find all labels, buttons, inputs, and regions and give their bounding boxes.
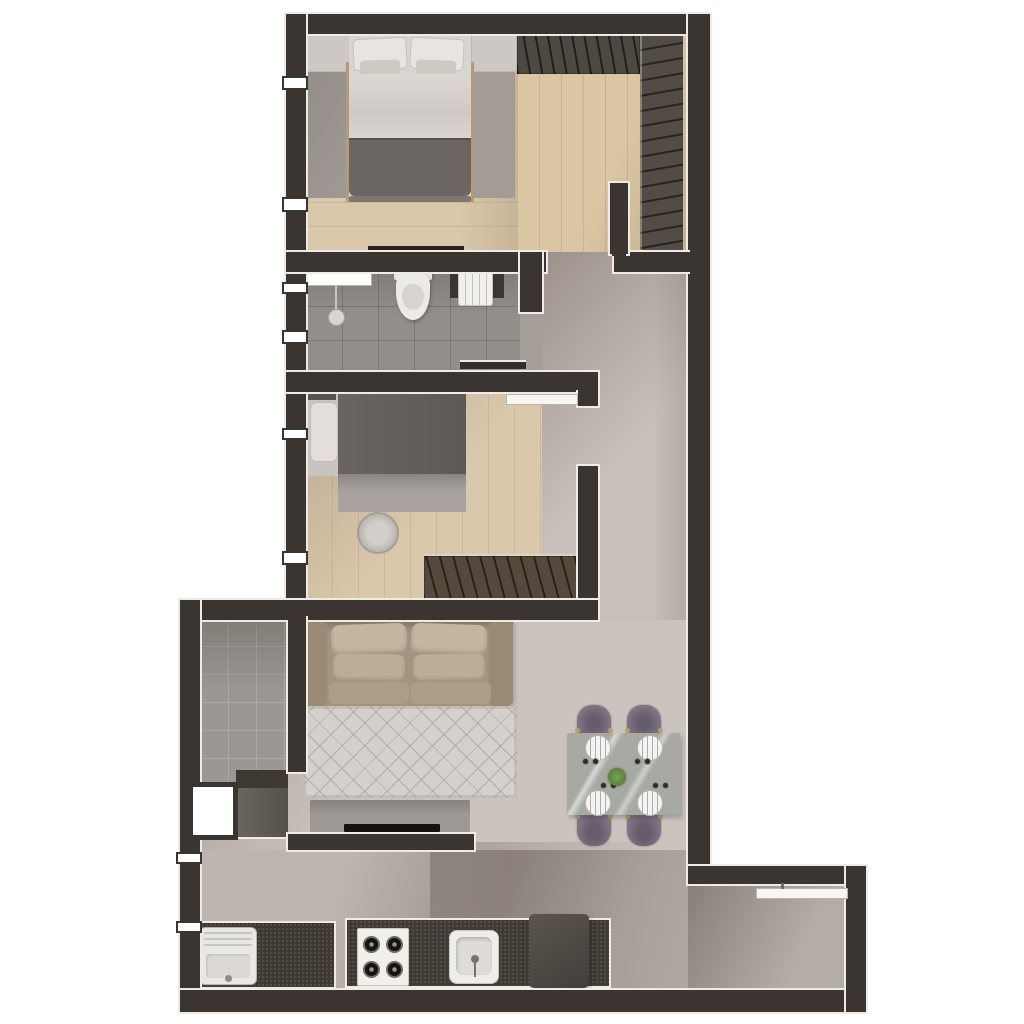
dining-chair-top-left — [577, 705, 611, 735]
sofa-seat-left — [329, 682, 409, 704]
sofa-arm-left — [303, 620, 327, 706]
vanity-basin — [458, 270, 493, 306]
wall-balcony-top — [688, 866, 866, 884]
toilet — [394, 266, 432, 322]
wall-bedroom2-right-top — [578, 392, 598, 406]
desk-stool — [357, 512, 399, 554]
sofa-seat-cushion-left — [333, 653, 405, 682]
sofa-seat-cushion-right — [413, 653, 485, 682]
window-kitchen-left — [176, 921, 202, 933]
window-bedroom1-a — [282, 76, 308, 90]
wall-bedroom1-bottom — [286, 252, 546, 272]
wall-tv-half — [288, 834, 474, 850]
kitchen-sink — [449, 930, 499, 984]
balcony-sliding-door — [756, 888, 848, 899]
wall-joint — [286, 600, 306, 620]
sofa-arm-right — [489, 620, 513, 706]
wall-bathroom-right — [520, 252, 542, 312]
wall-joint — [612, 248, 626, 256]
bath-mat — [460, 362, 526, 369]
bed2-pillow — [310, 402, 338, 462]
wardrobe-right — [640, 34, 683, 250]
bed2-blanket — [338, 392, 466, 476]
floor-plan — [0, 0, 1024, 1024]
wall-joint — [286, 14, 306, 34]
bed-blanket — [349, 138, 471, 196]
single-bed — [306, 390, 466, 476]
window-bedroom1-b — [282, 197, 308, 212]
sink-faucet-stem — [474, 963, 476, 977]
cup — [582, 758, 589, 765]
sink-faucet — [471, 955, 479, 963]
window-bathroom-a — [282, 282, 308, 294]
service-room-floor — [200, 618, 288, 782]
cup — [592, 758, 599, 765]
wall-joint — [688, 866, 710, 884]
stove — [357, 928, 409, 986]
bed-duvet — [349, 74, 471, 140]
wall-left-upper — [286, 14, 306, 620]
wardrobe-top — [517, 34, 640, 74]
plate-top-right — [637, 735, 663, 761]
table-plant — [608, 768, 626, 786]
wall-shelf — [368, 246, 464, 251]
tv — [344, 824, 440, 832]
stove-burner — [386, 936, 403, 953]
cup — [662, 782, 669, 789]
window-service — [176, 852, 202, 864]
cup — [652, 782, 659, 789]
living-rug — [303, 706, 517, 798]
sofa-seat-right — [411, 682, 491, 704]
wall-bedroom2-right-bottom — [578, 466, 598, 620]
dining-chair-bottom-left — [577, 812, 611, 846]
stove-burner — [363, 936, 380, 953]
double-bed — [346, 34, 474, 206]
cup — [600, 782, 607, 789]
door-leaf-bedroom2 — [506, 394, 578, 405]
plate-bottom-left — [585, 790, 611, 816]
shower-head — [328, 309, 345, 326]
stove-burner — [363, 961, 380, 978]
desk — [338, 474, 466, 512]
plate-bottom-right — [637, 790, 663, 816]
wardrobe-bedroom-2 — [424, 556, 578, 602]
dining-chair-top-right — [627, 705, 661, 735]
wall-joint — [688, 252, 710, 272]
wall-bottom — [180, 990, 866, 1012]
shower-hose — [335, 286, 337, 310]
tank-washboard — [204, 932, 252, 950]
laundry-tank — [199, 927, 257, 985]
wall-joint — [180, 990, 200, 1012]
sofa — [303, 616, 513, 706]
wall-joint — [846, 866, 866, 884]
wall-right — [688, 14, 710, 884]
plate-top-left — [585, 735, 611, 761]
window-bathroom-b — [282, 330, 308, 344]
wall-joint — [180, 600, 200, 620]
wall-bathroom-bedroom2 — [286, 372, 598, 392]
wall-joint — [846, 990, 866, 1012]
refrigerator — [529, 914, 589, 988]
wall-joint — [578, 386, 598, 394]
stove-burner — [386, 961, 403, 978]
sofa-back-cushion-right — [410, 623, 487, 658]
sliding-door-handle — [781, 883, 784, 889]
cup — [644, 758, 651, 765]
tank-faucet — [225, 975, 232, 982]
wall-top — [286, 14, 710, 34]
wall-living-top — [180, 600, 598, 620]
service-counter-top — [236, 770, 288, 788]
nightstand-right — [471, 34, 517, 72]
cup — [634, 758, 641, 765]
window-bedroom2-a — [282, 428, 308, 440]
wall-closet-stub — [610, 183, 628, 254]
bed-foot-bench — [349, 196, 471, 202]
wall-joint — [520, 268, 542, 274]
nightstand-left — [306, 34, 350, 72]
sofa-back-cushion-left — [330, 623, 407, 658]
wall-joint — [286, 252, 306, 272]
service-cabinet — [238, 788, 288, 837]
wall-joint — [688, 14, 710, 34]
wall-service-right — [288, 618, 306, 772]
wall-joint — [286, 372, 306, 392]
dining-chair-bottom-right — [627, 812, 661, 846]
window-bedroom2-b — [282, 551, 308, 565]
service-door — [188, 782, 238, 840]
balcony-floor — [688, 884, 846, 990]
